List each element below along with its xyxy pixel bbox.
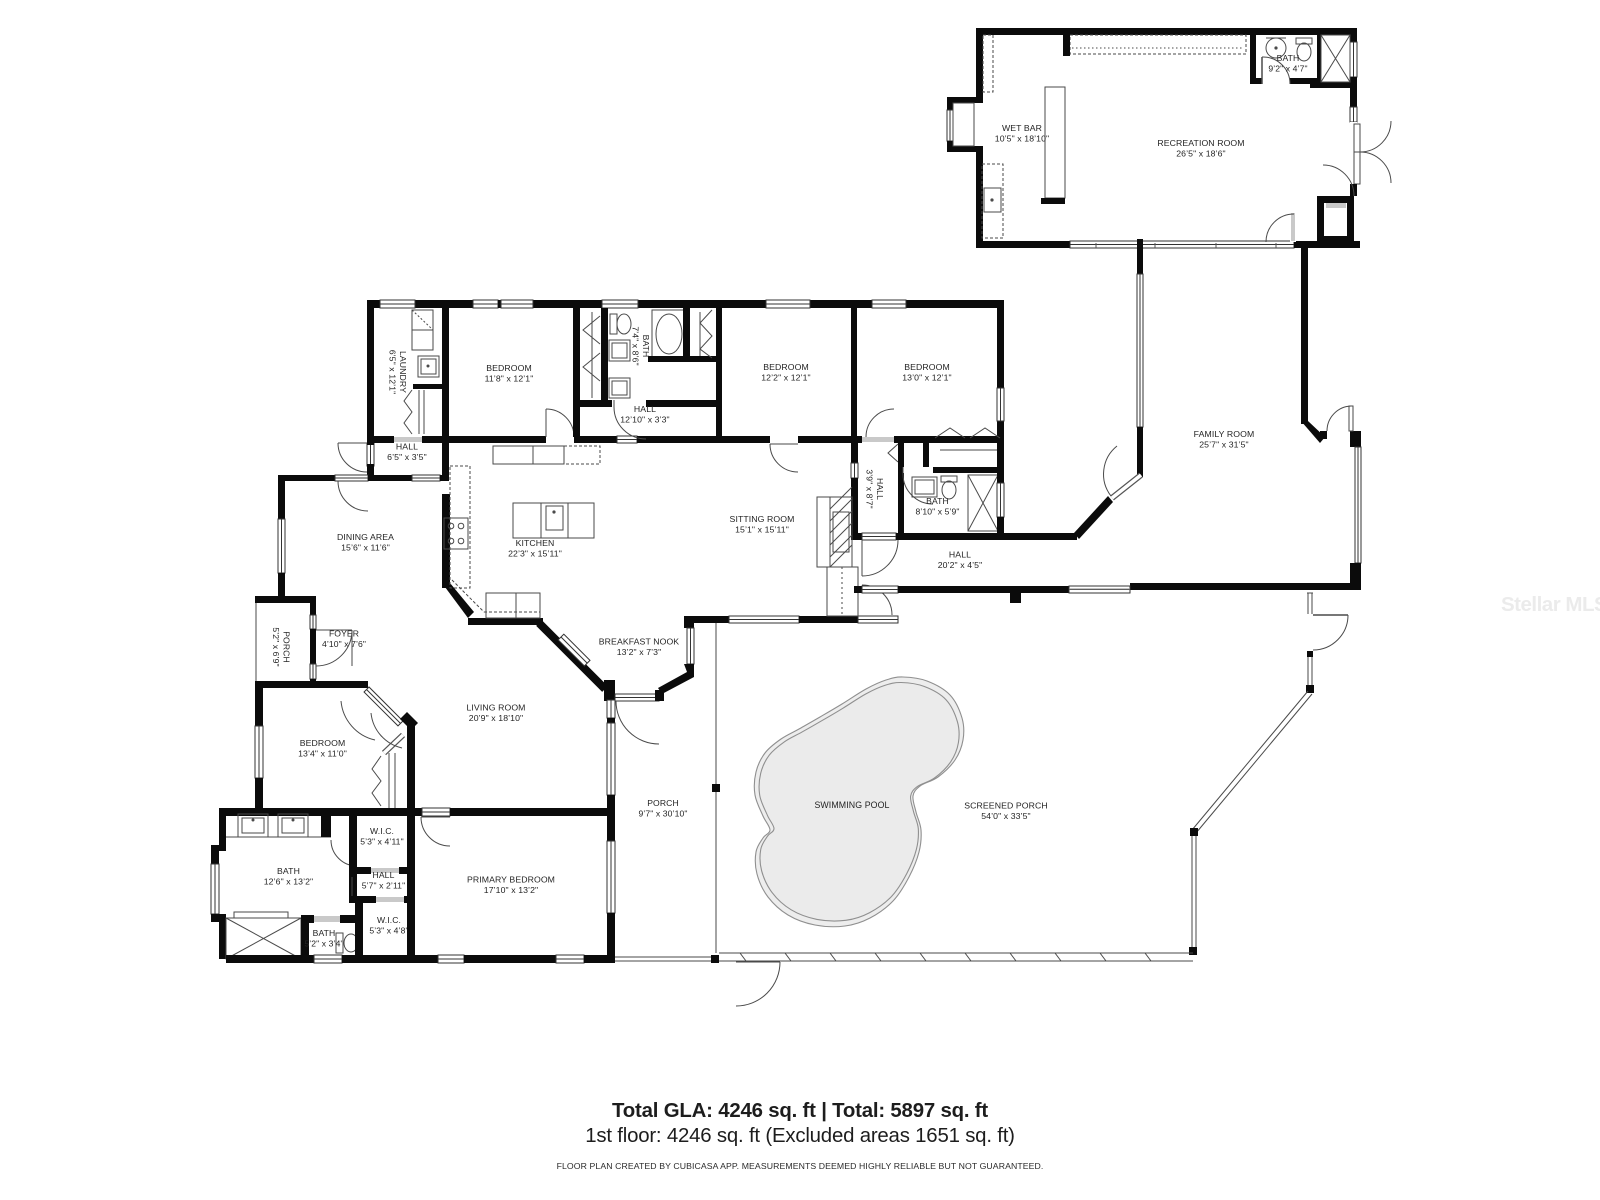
svg-text:9’2" x 4’7": 9’2" x 4’7" — [1268, 64, 1307, 74]
svg-text:HALL: HALL — [396, 442, 418, 452]
svg-text:5’7" x 2’11": 5’7" x 2’11" — [362, 881, 405, 891]
svg-text:DINING AREA: DINING AREA — [337, 532, 394, 542]
svg-text:5’3" x 4’8": 5’3" x 4’8" — [369, 926, 408, 936]
svg-text:BEDROOM: BEDROOM — [300, 738, 346, 748]
svg-text:20’2" x 4’5": 20’2" x 4’5" — [938, 560, 983, 570]
svg-text:LIVING ROOM: LIVING ROOM — [466, 703, 525, 713]
svg-text:22’3" x 15’11": 22’3" x 15’11" — [508, 549, 562, 559]
svg-text:HALL: HALL — [634, 404, 656, 414]
svg-text:BEDROOM: BEDROOM — [904, 362, 950, 372]
svg-text:BATH: BATH — [277, 866, 300, 876]
svg-text:12’6" x 13’2": 12’6" x 13’2" — [264, 877, 314, 887]
svg-text:15’6" x 11’6": 15’6" x 11’6" — [341, 543, 390, 553]
svg-text:BATH: BATH — [641, 335, 651, 358]
svg-text:Stellar MLS: Stellar MLS — [1501, 593, 1600, 616]
svg-text:FLOOR PLAN CREATED BY CUBICASA: FLOOR PLAN CREATED BY CUBICASA APP. MEAS… — [557, 1161, 1044, 1171]
svg-text:SCREENED PORCH: SCREENED PORCH — [964, 801, 1047, 811]
svg-text:BEDROOM: BEDROOM — [763, 362, 809, 372]
svg-text:12’10" x 3’3": 12’10" x 3’3" — [620, 415, 670, 425]
svg-text:Total GLA: 4246 sq. ft | Total: Total GLA: 4246 sq. ft | Total: 5897 sq.… — [612, 1100, 988, 1122]
svg-text:17’10" x 13’2": 17’10" x 13’2" — [484, 885, 538, 895]
svg-text:9’7" x 30’10": 9’7" x 30’10" — [639, 809, 688, 819]
svg-text:11’8" x 12’1": 11’8" x 12’1" — [485, 374, 534, 384]
svg-text:5’3" x 4’11": 5’3" x 4’11" — [360, 837, 403, 847]
svg-text:13’0" x 12’1": 13’0" x 12’1" — [902, 373, 952, 383]
svg-text:5’2" x 6’9": 5’2" x 6’9" — [271, 627, 281, 666]
svg-text:RECREATION ROOM: RECREATION ROOM — [1157, 138, 1244, 148]
svg-text:SITTING ROOM: SITTING ROOM — [730, 514, 795, 524]
svg-text:WET BAR: WET BAR — [1002, 123, 1042, 133]
svg-text:HALL: HALL — [949, 550, 971, 560]
svg-text:BATH: BATH — [313, 928, 336, 938]
svg-text:PORCH: PORCH — [647, 798, 679, 808]
svg-text:W.I.C.: W.I.C. — [370, 826, 394, 836]
svg-text:20’9" x 18’10": 20’9" x 18’10" — [469, 713, 523, 723]
svg-text:HALL: HALL — [373, 870, 395, 880]
svg-text:13’2" x 7’3": 13’2" x 7’3" — [617, 647, 662, 657]
svg-text:HALL: HALL — [875, 478, 885, 500]
svg-text:SWIMMING POOL: SWIMMING POOL — [814, 800, 889, 810]
svg-text:FAMILY ROOM: FAMILY ROOM — [1194, 429, 1255, 439]
svg-text:25’7" x 31’5": 25’7" x 31’5" — [1199, 440, 1249, 450]
svg-text:12’2" x 12’1": 12’2" x 12’1" — [761, 373, 811, 383]
svg-text:26’5" x 18’6": 26’5" x 18’6" — [1176, 149, 1226, 159]
svg-text:1st floor: 4246 sq. ft (Exclud: 1st floor: 4246 sq. ft (Excluded areas 1… — [585, 1125, 1015, 1147]
svg-text:6’5" x 3’5": 6’5" x 3’5" — [387, 452, 427, 462]
svg-text:8’10" x 5’9": 8’10" x 5’9" — [915, 507, 959, 517]
svg-text:13’4" x 11’0": 13’4" x 11’0" — [298, 749, 347, 759]
svg-text:LAUNDRY: LAUNDRY — [398, 351, 408, 393]
svg-text:BREAKFAST NOOK: BREAKFAST NOOK — [599, 637, 680, 647]
svg-text:3’9" x 8’7": 3’9" x 8’7" — [865, 469, 875, 508]
svg-text:W.I.C.: W.I.C. — [377, 915, 401, 925]
svg-text:PORCH: PORCH — [282, 631, 292, 663]
svg-text:7’4" x 8’6": 7’4" x 8’6" — [631, 326, 641, 365]
svg-text:KITCHEN: KITCHEN — [516, 538, 555, 548]
svg-text:BATH: BATH — [1277, 53, 1300, 63]
svg-text:BEDROOM: BEDROOM — [486, 363, 532, 373]
svg-text:54’0" x 33’5": 54’0" x 33’5" — [981, 811, 1031, 821]
svg-text:4’10" x 7’6": 4’10" x 7’6" — [322, 639, 366, 649]
svg-text:PRIMARY BEDROOM: PRIMARY BEDROOM — [467, 875, 555, 885]
svg-text:15’1" x 15’11": 15’1" x 15’11" — [735, 525, 789, 535]
svg-text:6’5" x 12’1": 6’5" x 12’1" — [388, 350, 398, 395]
svg-text:5’2" x 3’4": 5’2" x 3’4" — [304, 939, 343, 949]
svg-text:10’5" x 18’10": 10’5" x 18’10" — [995, 134, 1049, 144]
